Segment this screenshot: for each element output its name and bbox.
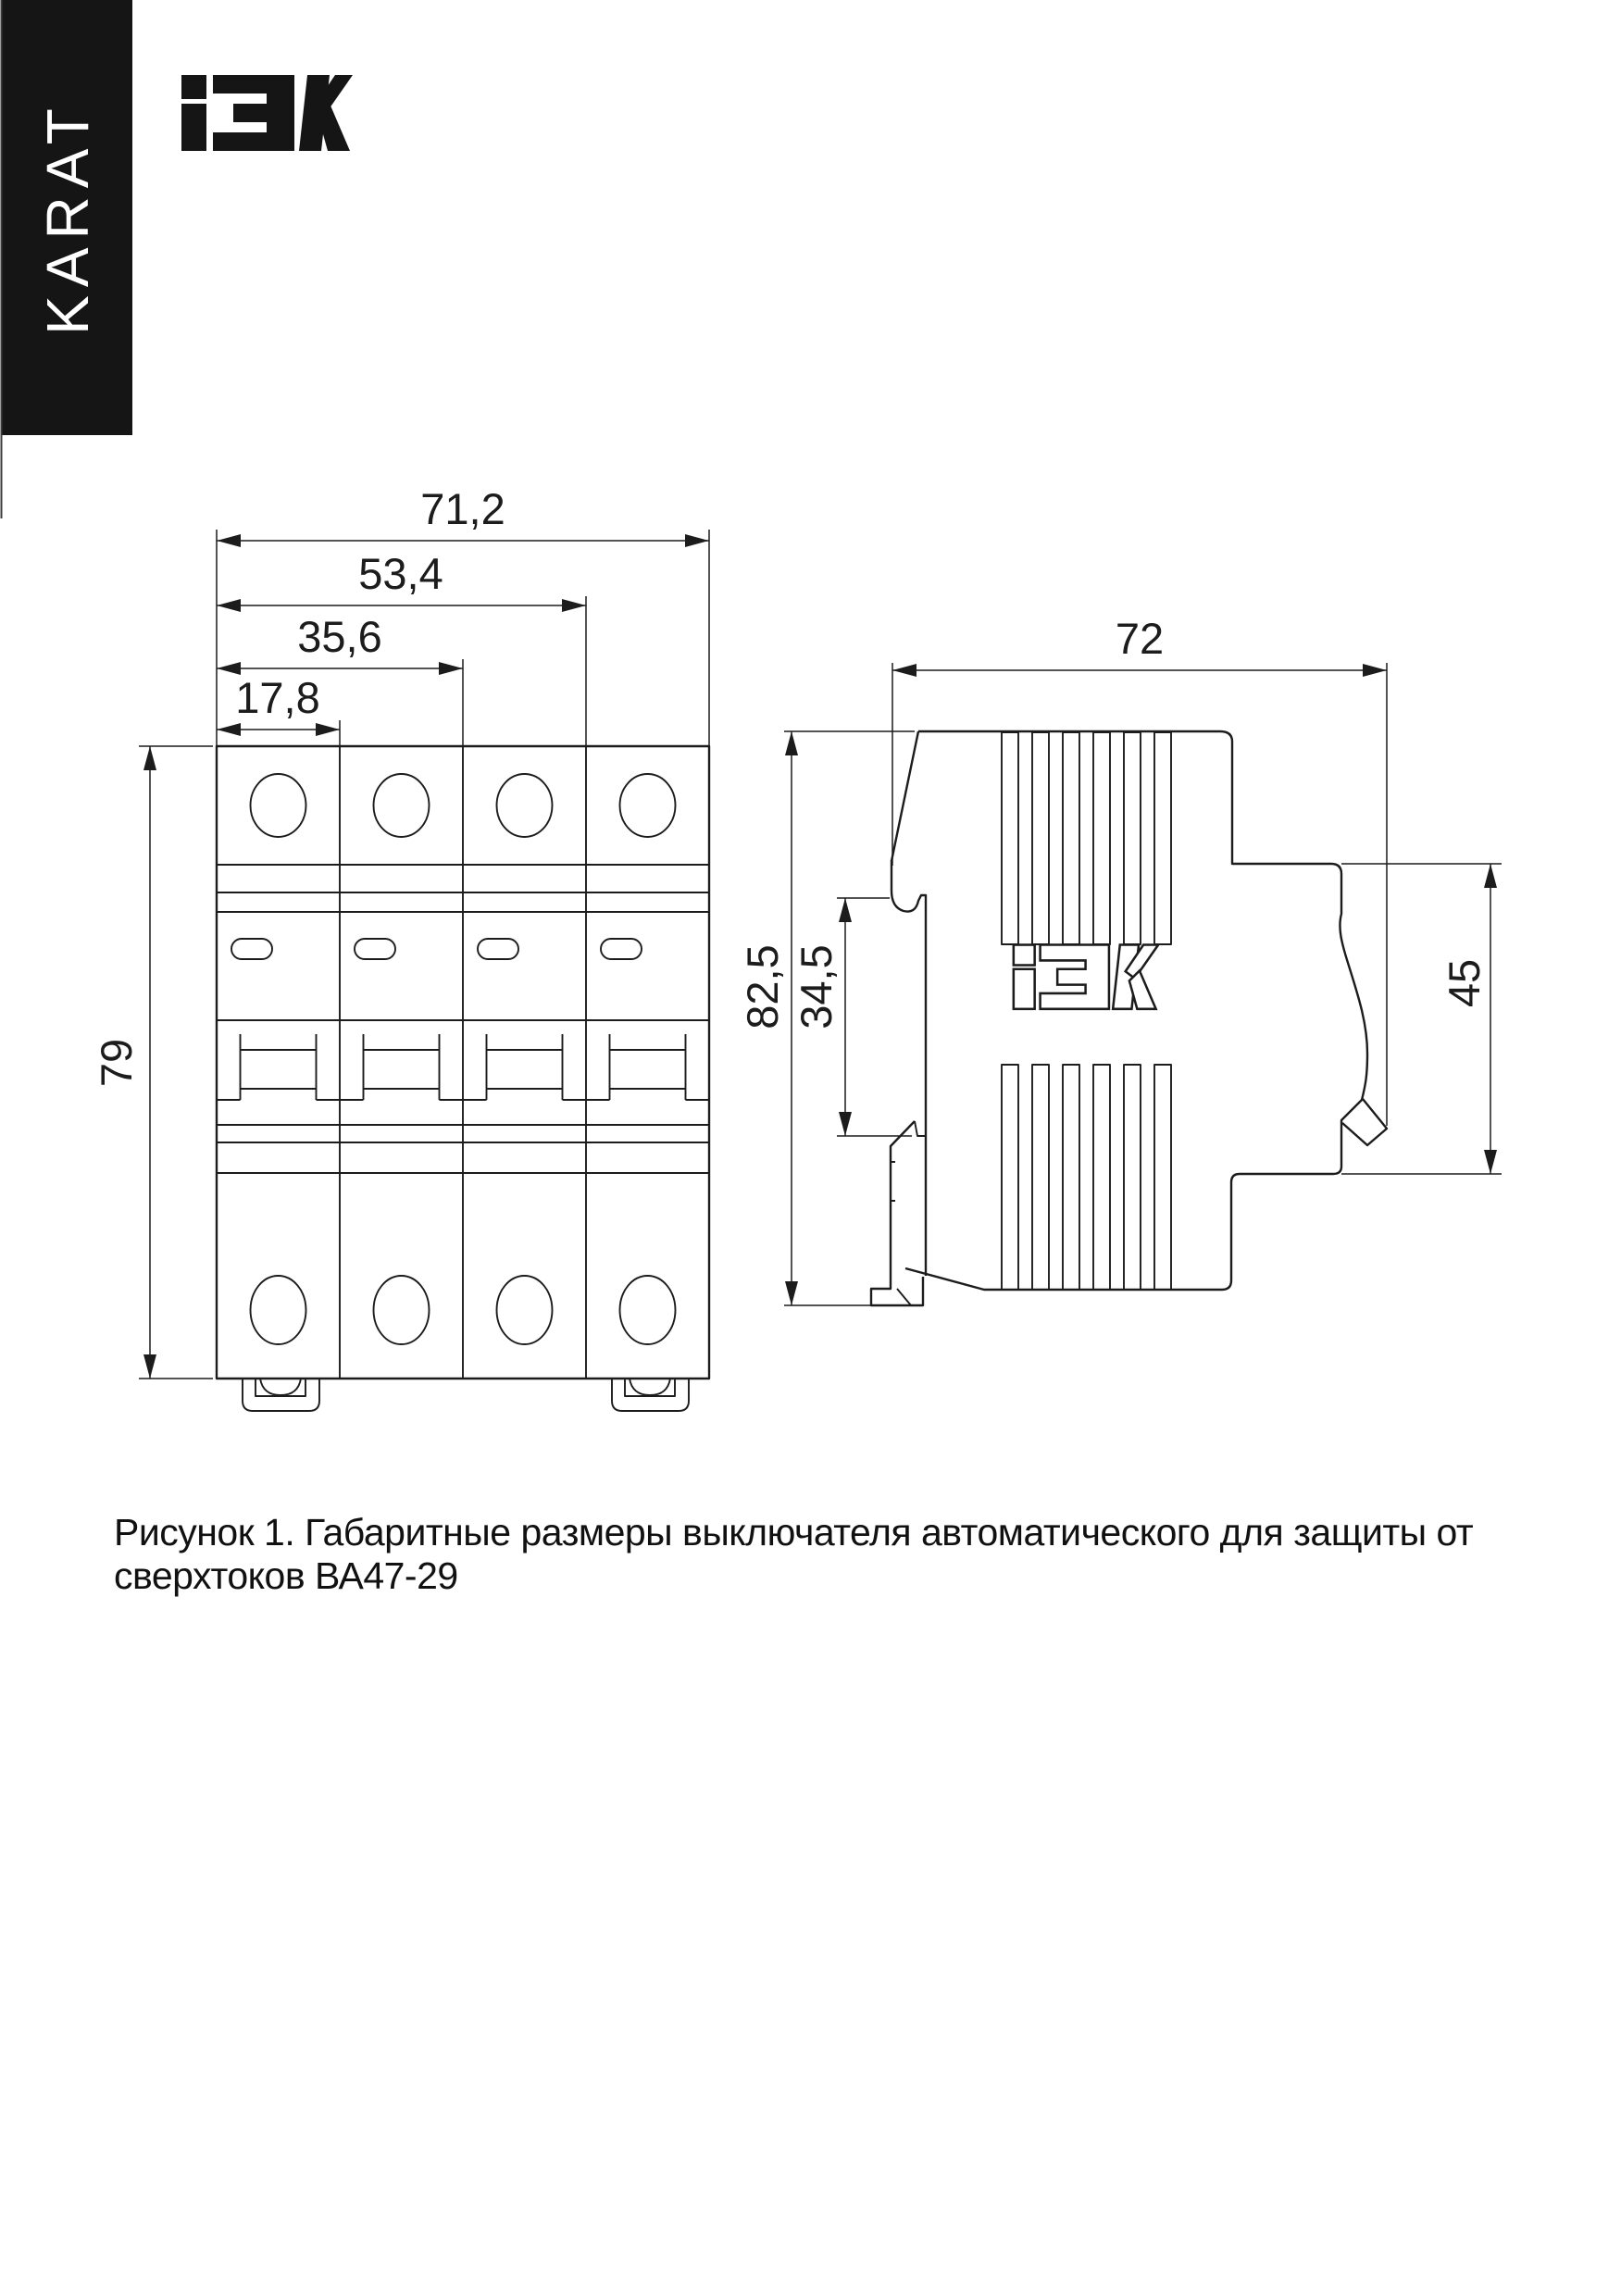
- page: { "brand": { "vertical_label": "KARAT", …: [0, 0, 1621, 2296]
- dim-label-depth: 72: [1116, 614, 1164, 663]
- side-lower-vents: [1002, 1065, 1171, 1290]
- front-din-clips: [243, 1379, 689, 1411]
- front-view-dimensions: 71,2 53,4 35,6 17,8 79: [92, 484, 709, 1379]
- dim-label-width-total: 71,2: [420, 484, 505, 533]
- dim-label-rail-span: 34,5: [792, 944, 841, 1029]
- figure-caption: Рисунок 1. Габаритные размеры выключател…: [114, 1511, 1503, 1598]
- side-upper-vents: [1002, 732, 1171, 944]
- dim-label-lower-depth: 45: [1440, 959, 1489, 1007]
- iek-logo: [181, 75, 353, 151]
- front-view: 71,2 53,4 35,6 17,8 79: [92, 484, 709, 1411]
- side-din-latch: [871, 1121, 926, 1305]
- side-view: 72 82,5 34,5 45: [738, 614, 1502, 1305]
- side-iek-logo: [1014, 945, 1158, 1009]
- front-label-slots: [231, 939, 642, 959]
- dim-label-side-height: 82,5: [738, 944, 787, 1029]
- dim-label-front-height: 79: [92, 1039, 141, 1087]
- dim-label-width-one: 17,8: [235, 673, 319, 722]
- dim-label-width-two: 35,6: [297, 612, 381, 661]
- technical-drawing: 71,2 53,4 35,6 17,8 79: [0, 0, 1621, 2296]
- dim-label-width-three: 53,4: [358, 549, 443, 598]
